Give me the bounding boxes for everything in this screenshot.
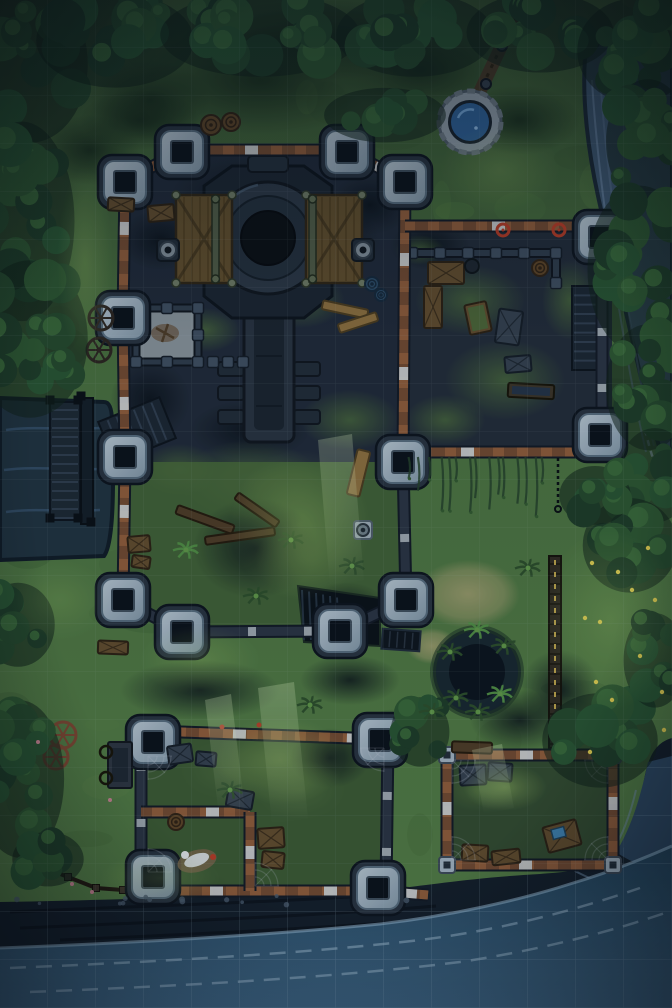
vignette [0, 0, 672, 1008]
battle-map[interactable] [0, 0, 672, 1008]
map-canvas [0, 0, 672, 1008]
